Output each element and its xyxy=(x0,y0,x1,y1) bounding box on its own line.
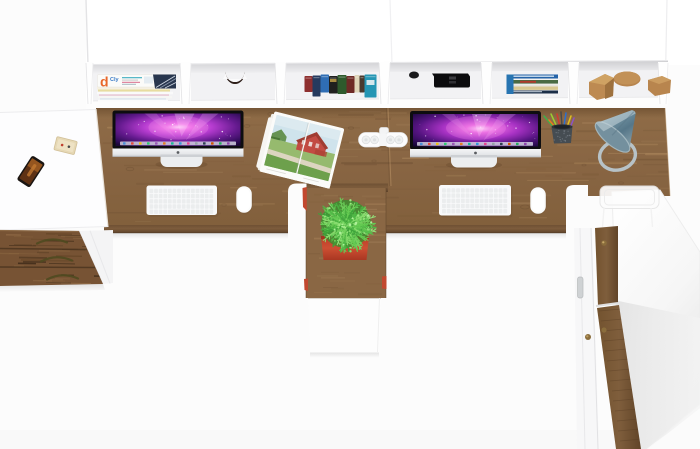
svg-text:Cly: Cly xyxy=(110,77,120,83)
svg-text:d: d xyxy=(100,74,109,90)
